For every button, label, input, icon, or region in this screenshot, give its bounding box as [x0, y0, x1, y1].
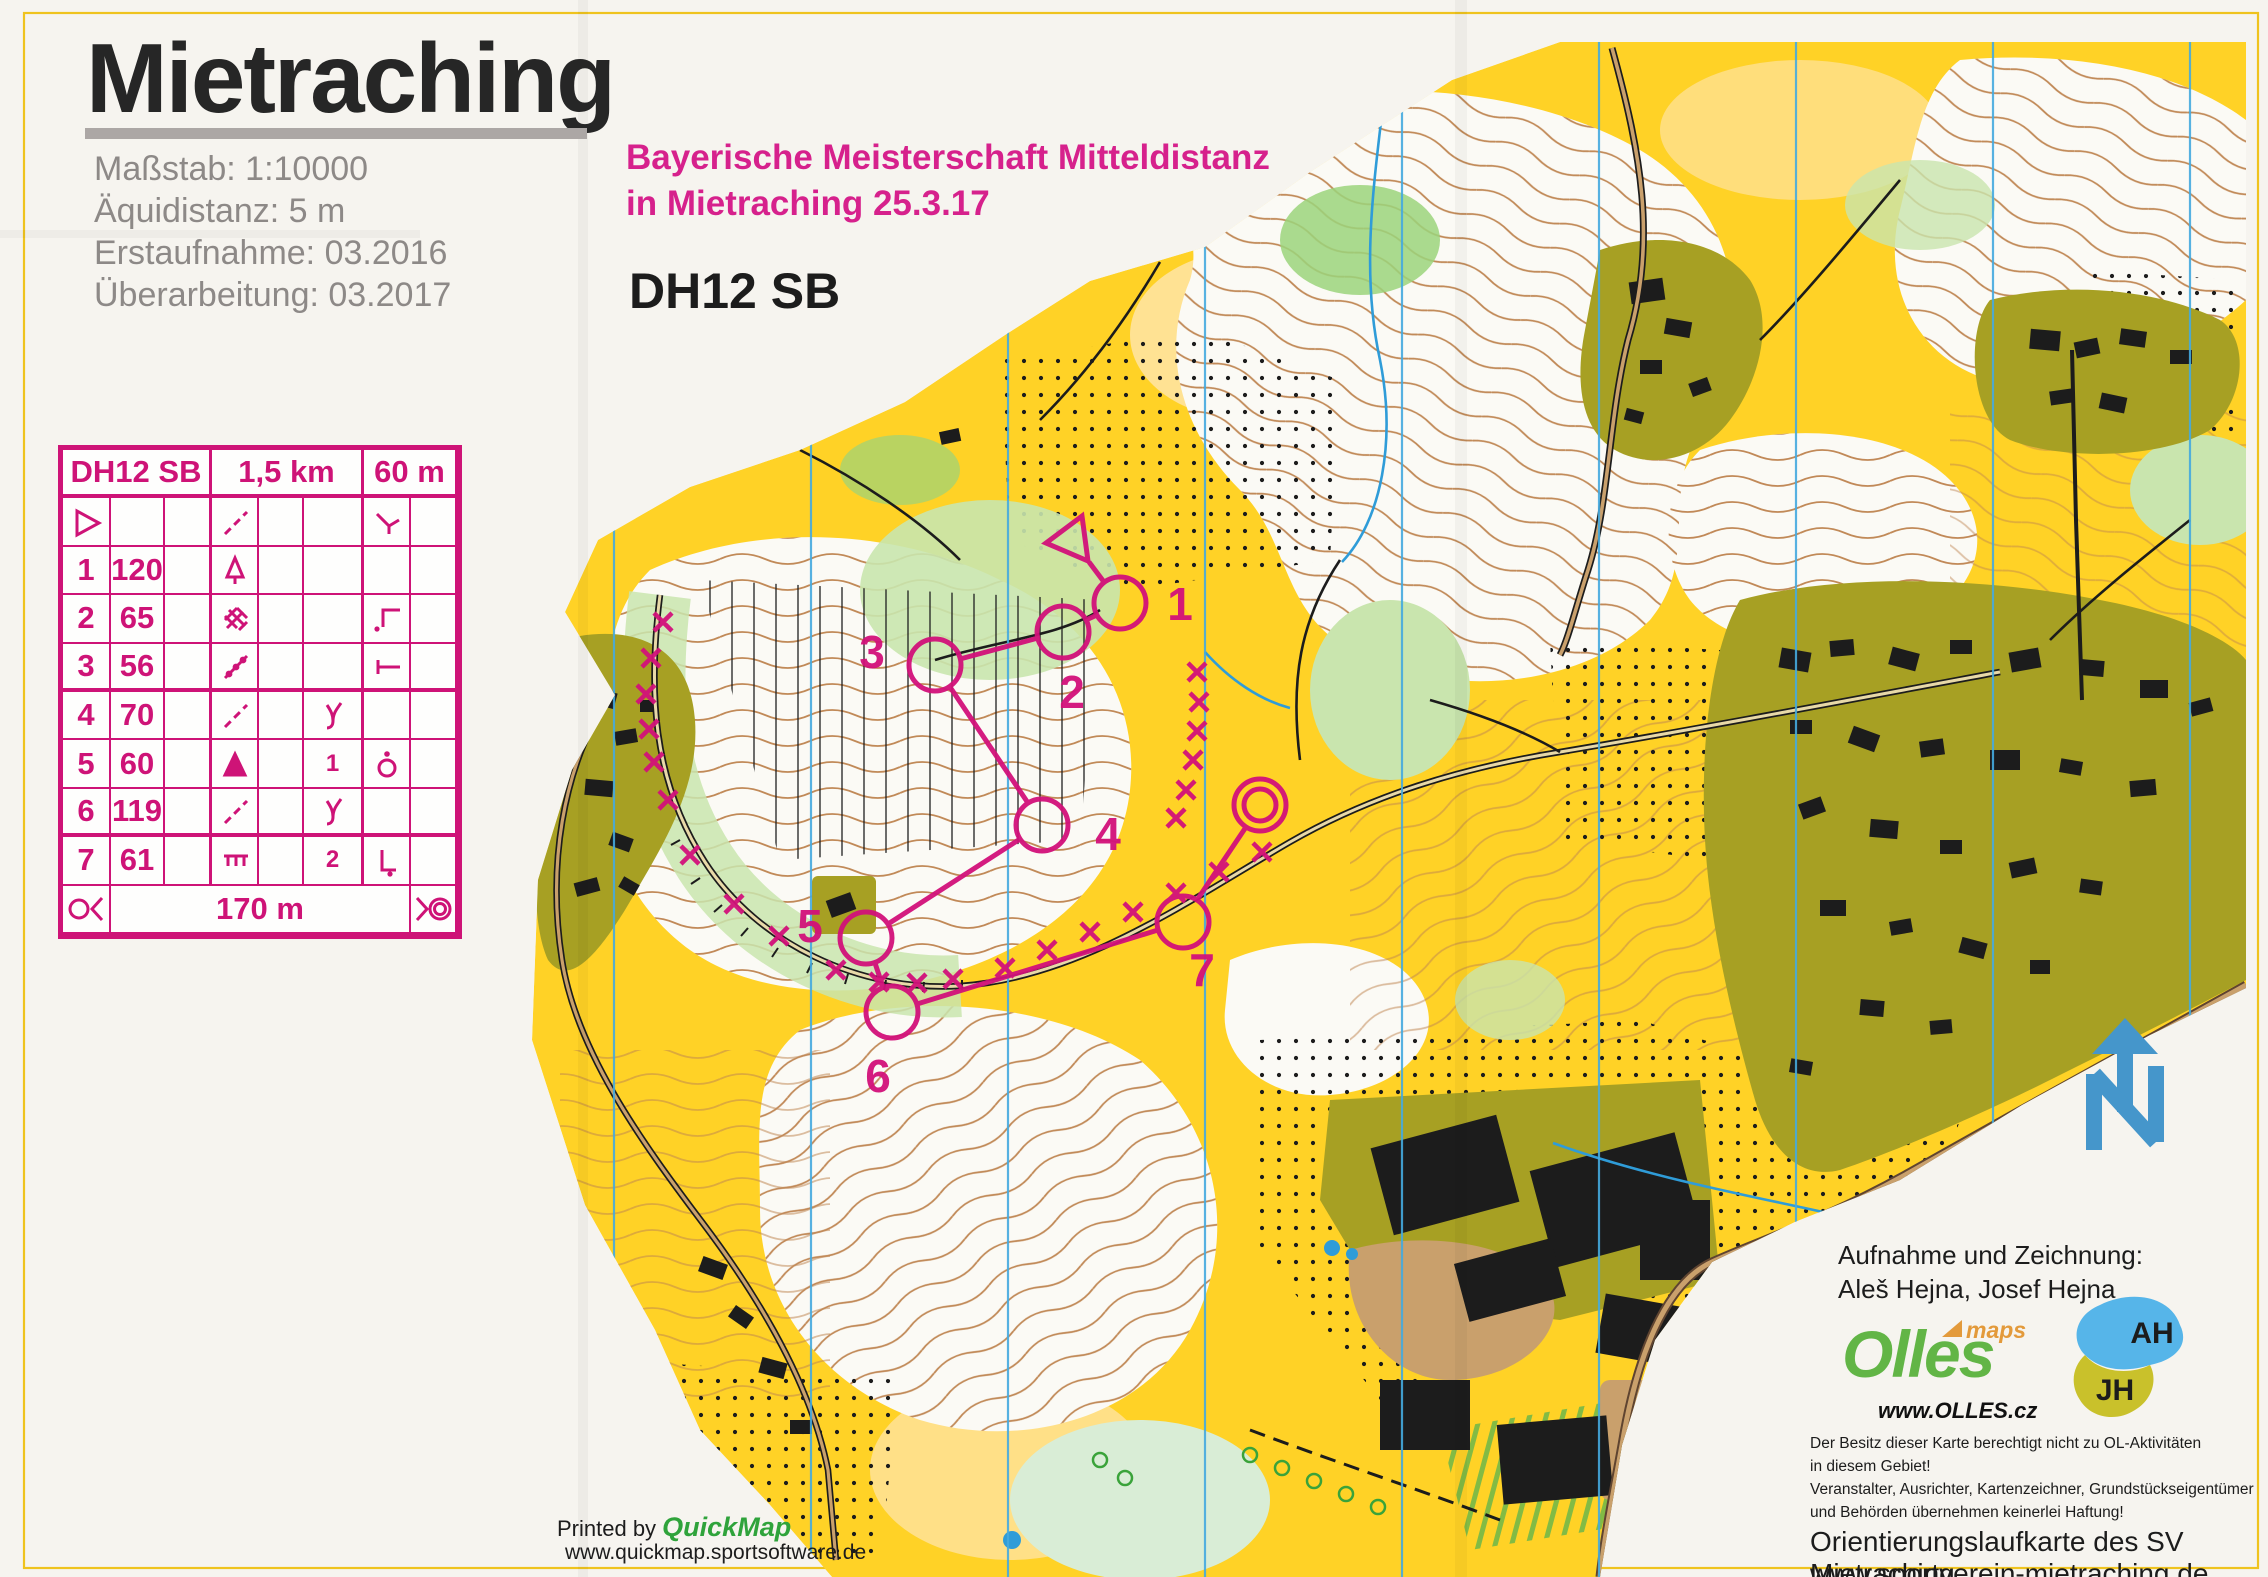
map-title: Mietraching	[86, 22, 614, 135]
control-code: 119	[111, 789, 165, 837]
control-number-3: 3	[859, 626, 885, 678]
circle-dot-icon	[364, 740, 411, 788]
control-number-7: 7	[1189, 944, 1215, 996]
olles-url: www.OLLES.cz	[1878, 1398, 2037, 1424]
card-climb: 60 m	[364, 450, 457, 498]
event-title-line1: Bayerische Meisterschaft Mitteldistanz	[626, 138, 1270, 178]
control-code: 61	[111, 837, 165, 885]
event-title-line2: in Mietraching 25.3.17	[626, 184, 990, 224]
course-class-label: DH12 SB	[629, 262, 840, 320]
card-length: 1,5 km	[212, 450, 364, 498]
disclaimer-line: und Behörden übernehmen keinerlei Haftun…	[1810, 1501, 2124, 1524]
printed-by-line: Printed by QuickMap	[557, 1512, 791, 1543]
initials-jh: JH	[2096, 1374, 2134, 1407]
finish-funnel-start-icon	[63, 886, 111, 934]
finish-distance: 170 m	[111, 886, 411, 934]
control-row-number: 1	[63, 547, 111, 595]
path-icon	[212, 789, 259, 837]
junction-y-icon	[304, 692, 364, 740]
erosion-gully-icon	[212, 644, 259, 692]
scanned-orienteering-map-sheet: 1 2 3 4 5 6 7 Mietraching Maßstab: 1:100…	[0, 0, 2268, 1577]
start-triangle-icon	[63, 498, 111, 546]
control-row-number: 3	[63, 644, 111, 692]
path-icon	[212, 692, 259, 740]
control-row-number: 2	[63, 595, 111, 643]
knoll-icon	[212, 740, 259, 788]
disclaimer-line: Veranstalter, Ausrichter, Kartenzeichner…	[1810, 1478, 2254, 1501]
control-number-6: 6	[865, 1050, 891, 1102]
control-row-number: 6	[63, 789, 111, 837]
printed-by-label: Printed by	[557, 1516, 662, 1541]
equidistance-label: Äquidistanz: 5 m	[94, 190, 345, 232]
thicket-icon	[212, 595, 259, 643]
title-divider	[85, 128, 587, 139]
quickmap-logo: QuickMap	[662, 1512, 791, 1542]
quickmap-url: www.quickmap.sportsoftware.de	[565, 1541, 866, 1565]
control-row-number: 5	[63, 740, 111, 788]
road-bend-icon	[364, 498, 411, 546]
control-description-card: DH12 SB 1,5 km 60 m 1 120 2 65	[58, 445, 462, 939]
control-number-2: 2	[1059, 666, 1085, 718]
revision-label: Überarbeitung: 03.2017	[94, 274, 451, 316]
control-number-5: 5	[797, 900, 823, 952]
tree-icon	[212, 547, 259, 595]
path-icon	[212, 498, 259, 546]
surveyor-areas-logo: AH JH	[2040, 1285, 2210, 1435]
survey-label: Erstaufnahme: 03.2016	[94, 232, 447, 274]
dimension-value: 2	[304, 837, 364, 885]
control-number-1: 1	[1167, 578, 1193, 630]
control-number-4: 4	[1095, 808, 1121, 860]
scale-label: Maßstab: 1:10000	[94, 148, 368, 190]
finish-funnel-end-icon	[411, 886, 457, 934]
disclaimer-line: Der Besitz dieser Karte berechtigt nicht…	[1810, 1432, 2201, 1455]
credits-heading: Aufnahme und Zeichnung:	[1838, 1240, 2143, 1271]
control-code: 70	[111, 692, 165, 740]
control-row-number: 7	[63, 837, 111, 885]
control-code: 120	[111, 547, 165, 595]
olles-maps-label: maps	[1966, 1317, 2026, 1344]
control-code: 65	[111, 595, 165, 643]
corner-dot-icon	[364, 837, 411, 885]
card-class: DH12 SB	[63, 450, 212, 498]
path-t-junction-icon	[364, 644, 411, 692]
club-url: www.sportverein-mietraching.de	[1810, 1558, 2208, 1577]
control-code: 56	[111, 644, 165, 692]
ruined-fence-icon	[212, 837, 259, 885]
dimension-value: 1	[304, 740, 364, 788]
disclaimer-line: in diesem Gebiet!	[1810, 1455, 1931, 1478]
junction-y-icon	[304, 789, 364, 837]
control-code: 60	[111, 740, 165, 788]
initials-ah: AH	[2130, 1317, 2173, 1350]
control-row-number: 4	[63, 692, 111, 740]
path-corner-dot-icon	[364, 595, 411, 643]
